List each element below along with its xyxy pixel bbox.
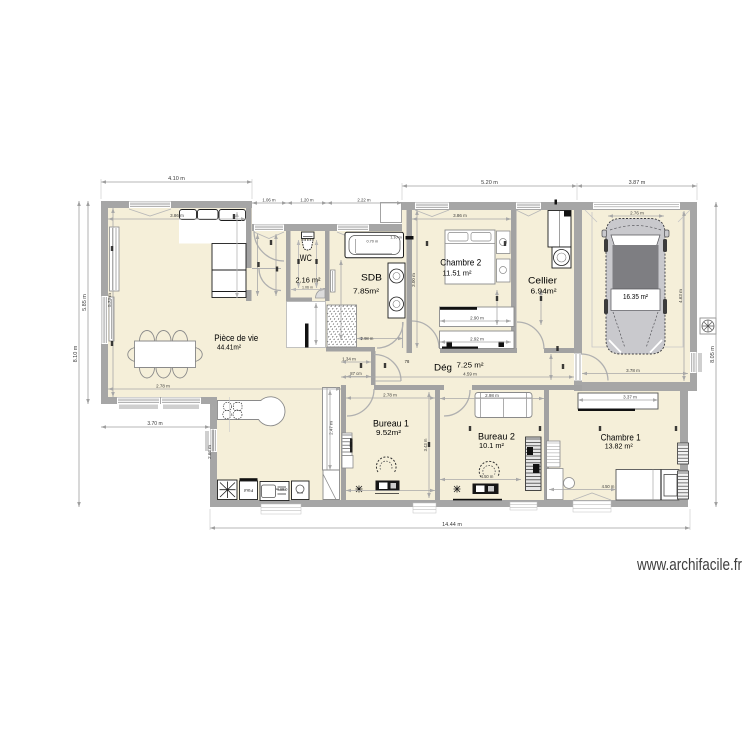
svg-text:3.86 m: 3.86 m [170,213,184,218]
svg-text:7.25 m²: 7.25 m² [457,361,485,370]
svg-text:3.86 m: 3.86 m [453,213,467,218]
svg-text:3.87 m: 3.87 m [629,180,646,186]
svg-text:7.85m²: 7.85m² [353,287,380,296]
svg-text:4.10 m: 4.10 m [168,176,185,182]
svg-text:0.70 m: 0.70 m [367,240,379,244]
svg-text:2.78 m: 2.78 m [156,384,170,389]
svg-text:5.73 m: 5.73 m [107,293,112,307]
svg-text:8.05 m: 8.05 m [710,346,716,363]
svg-text:44.41m²: 44.41m² [217,343,241,352]
svg-text:2.76 m: 2.76 m [630,211,644,216]
svg-text:1.06 m: 1.06 m [262,198,276,203]
svg-text:Chambre 2: Chambre 2 [440,258,481,269]
svg-text:0.60 m: 0.60 m [276,487,288,491]
svg-text:3.70 m: 3.70 m [147,421,162,427]
svg-text:4.50 m: 4.50 m [602,484,615,489]
svg-text:14.44 m: 14.44 m [442,522,462,528]
svg-text:10.1 m²: 10.1 m² [479,441,504,450]
svg-text:2.66 m: 2.66 m [207,445,212,459]
svg-text:2.78 m: 2.78 m [383,393,397,398]
svg-text:87 cm: 87 cm [350,371,362,376]
svg-text:4.59 m: 4.59 m [463,372,477,377]
svg-text:4.63 m: 4.63 m [678,289,683,303]
svg-text:3.37 m: 3.37 m [623,395,637,400]
svg-text:2.22 m: 2.22 m [357,198,371,203]
svg-text:1.20 m: 1.20 m [300,198,314,203]
svg-text:16.35 m²: 16.35 m² [623,292,648,301]
svg-text:5.85 m: 5.85 m [82,294,88,311]
svg-text:13.82 m²: 13.82 m² [605,442,633,451]
svg-text:1.34 m: 1.34 m [342,357,356,362]
svg-text:Cellier: Cellier [528,276,557,287]
svg-text:1.10 m: 1.10 m [390,236,402,240]
svg-text:2.16 m²: 2.16 m² [296,276,321,285]
svg-text:1.06 m: 1.06 m [302,285,313,289]
svg-text:www.archifacile.fr: www.archifacile.fr [636,555,742,574]
svg-text:SDB: SDB [361,273,382,284]
svg-text:WC: WC [300,253,312,263]
svg-text:Dég: Dég [434,363,452,374]
svg-text:11.51 m²: 11.51 m² [443,269,472,278]
svg-text:8.10 m: 8.10 m [73,345,79,362]
svg-text:2.90 m: 2.90 m [470,316,484,321]
svg-text:9.52m²: 9.52m² [376,428,402,437]
svg-text:2.92 m: 2.92 m [470,337,484,342]
svg-text:Four: Four [243,488,253,493]
svg-text:2.47 m: 2.47 m [329,421,334,435]
svg-text:78: 78 [405,359,410,364]
svg-text:6.94m²: 6.94m² [531,287,558,296]
svg-text:2.98 m: 2.98 m [485,393,499,398]
svg-text:4.50 m: 4.50 m [481,474,494,479]
svg-text:3.43 m: 3.43 m [423,438,428,451]
svg-text:5.20 m: 5.20 m [481,180,498,186]
svg-text:3.00 m: 3.00 m [411,273,416,287]
svg-text:2.98 m: 2.98 m [361,336,374,341]
svg-text:3.78 m: 3.78 m [626,368,640,373]
